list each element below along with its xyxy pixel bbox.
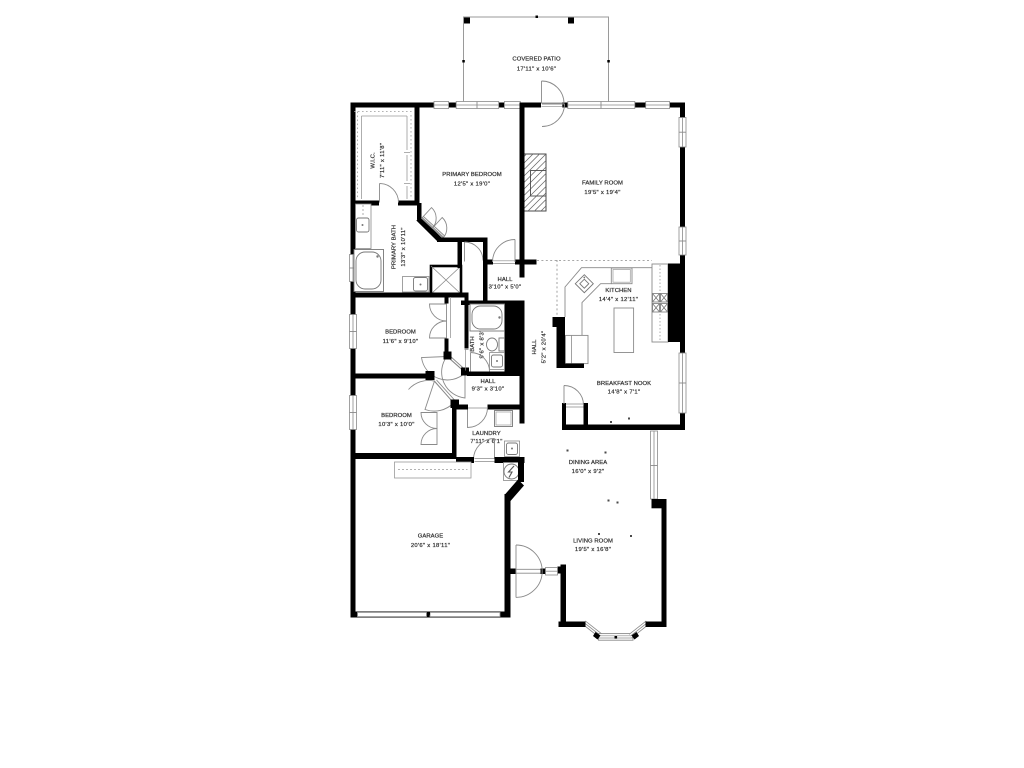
svg-text:9'6" x 8'3": 9'6" x 8'3"	[480, 329, 486, 358]
svg-text:HALL: HALL	[481, 379, 497, 385]
svg-text:14'4" x 12'11": 14'4" x 12'11"	[599, 297, 638, 303]
svg-text:LAUNDRY: LAUNDRY	[472, 431, 500, 437]
svg-text:HALL: HALL	[498, 277, 514, 283]
svg-text:17'11" x 10'6": 17'11" x 10'6"	[517, 67, 556, 73]
svg-text:19'5" x 16'8": 19'5" x 16'8"	[575, 547, 611, 553]
svg-text:16'0" x 9'2": 16'0" x 9'2"	[572, 469, 605, 475]
svg-text:BEDROOM: BEDROOM	[385, 330, 416, 336]
svg-text:HALL: HALL	[532, 339, 538, 355]
svg-text:PRIMARY BEDROOM: PRIMARY BEDROOM	[442, 172, 501, 178]
svg-text:14'8" x 7'1": 14'8" x 7'1"	[608, 390, 641, 396]
svg-text:BREAKFAST NOOK: BREAKFAST NOOK	[597, 381, 651, 387]
svg-text:FAMILY ROOM: FAMILY ROOM	[582, 181, 623, 187]
svg-text:COVERED PATIO: COVERED PATIO	[512, 57, 561, 63]
svg-text:20'6" x 18'11": 20'6" x 18'11"	[411, 543, 450, 549]
svg-text:11'6" x 9'10": 11'6" x 9'10"	[383, 339, 419, 345]
svg-text:10'3" x 10'0": 10'3" x 10'0"	[378, 422, 414, 428]
svg-text:DINING AREA: DINING AREA	[569, 460, 608, 466]
svg-text:KITCHEN: KITCHEN	[605, 288, 631, 294]
svg-text:3'10" x 5'0": 3'10" x 5'0"	[489, 285, 522, 291]
svg-text:BEDROOM: BEDROOM	[381, 413, 412, 419]
svg-text:9'3" x 3'10": 9'3" x 3'10"	[472, 387, 505, 393]
svg-text:12'5" x 19'0": 12'5" x 19'0"	[454, 182, 490, 188]
svg-text:PRIMARY BATH: PRIMARY BATH	[392, 225, 398, 269]
svg-text:GARAGE: GARAGE	[418, 534, 444, 540]
svg-text:BATH: BATH	[470, 336, 476, 351]
svg-text:W.I.C.: W.I.C.	[371, 152, 377, 169]
svg-text:5'2" x 20'4": 5'2" x 20'4"	[542, 331, 548, 364]
svg-text:19'5" x 19'4": 19'5" x 19'4"	[584, 190, 620, 196]
svg-text:7'11" x 11'8": 7'11" x 11'8"	[380, 143, 386, 178]
svg-text:LIVING ROOM: LIVING ROOM	[573, 539, 613, 545]
svg-text:13'3" x 10'11": 13'3" x 10'11"	[401, 227, 407, 266]
